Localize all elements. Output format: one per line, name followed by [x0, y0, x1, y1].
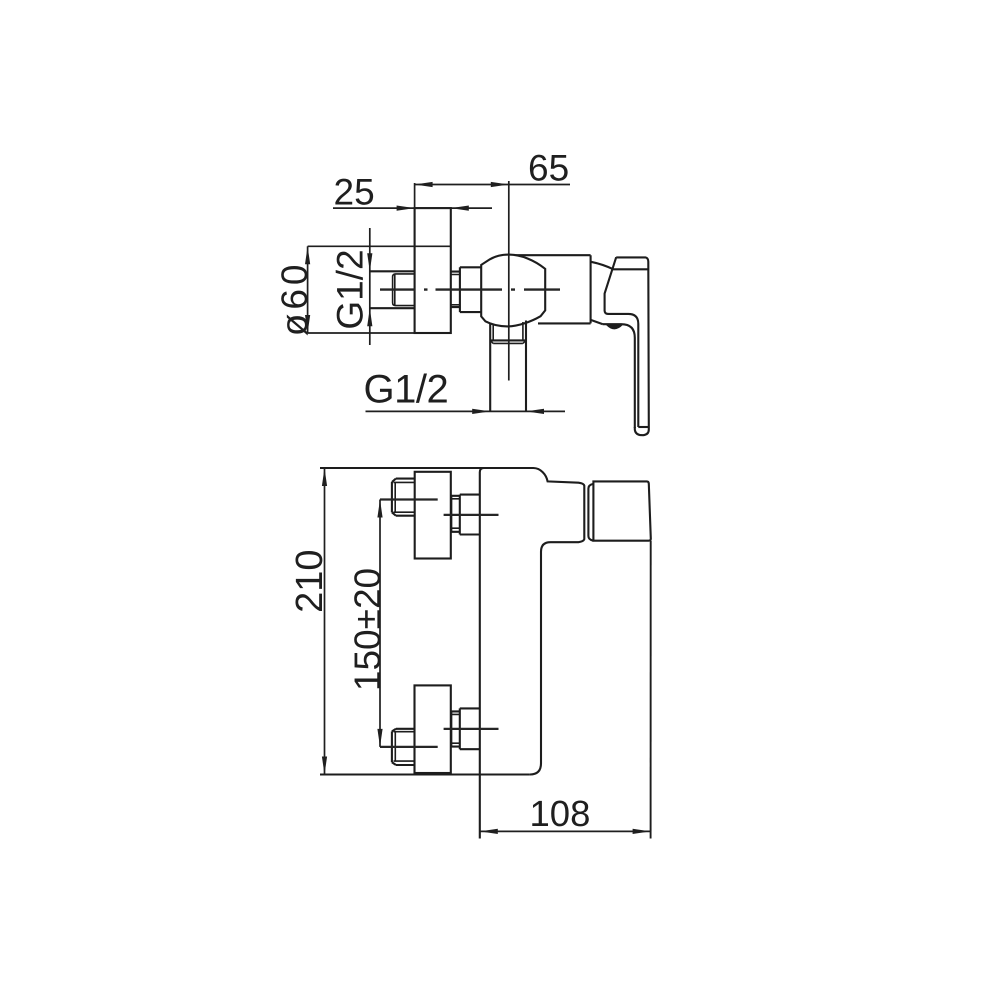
svg-text:210: 210	[289, 549, 331, 612]
svg-text:ø60: ø60	[274, 261, 315, 337]
svg-text:G1/2: G1/2	[330, 249, 371, 329]
svg-text:108: 108	[530, 793, 591, 834]
svg-text:150±20: 150±20	[347, 568, 388, 691]
svg-text:G1/2: G1/2	[364, 368, 449, 412]
svg-text:65: 65	[528, 148, 569, 189]
svg-text:25: 25	[334, 172, 375, 213]
